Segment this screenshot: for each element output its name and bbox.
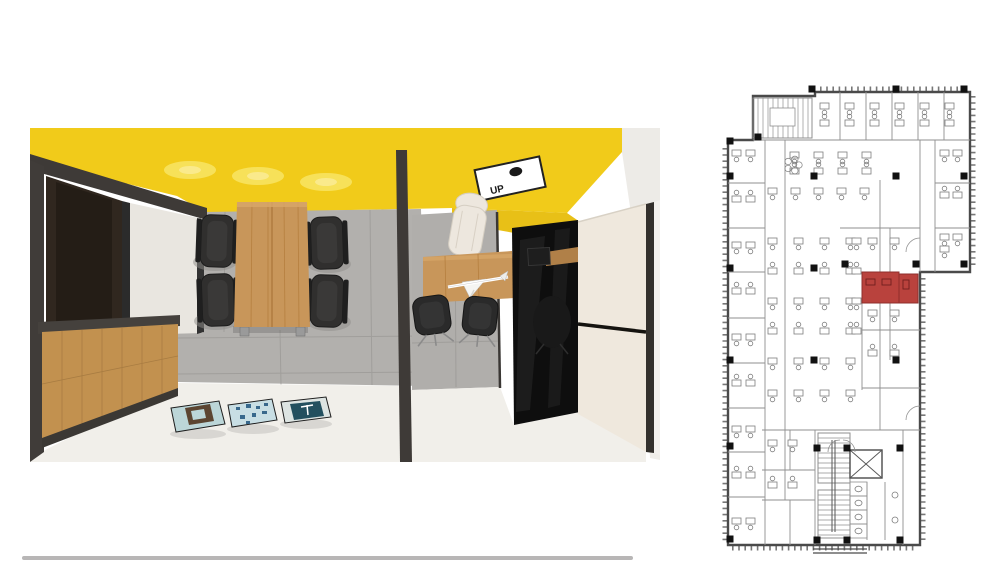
plan-desk — [862, 152, 871, 158]
room-render-3d: UP — [30, 128, 660, 462]
plan-desk — [794, 328, 803, 334]
plan-desk — [890, 238, 899, 244]
plan-desk — [940, 234, 949, 240]
plan-desk — [768, 390, 777, 396]
plan-column — [727, 138, 734, 145]
plan-desk — [940, 150, 949, 156]
media-cabinet — [512, 220, 580, 425]
wall-edge-post — [30, 160, 44, 462]
plan-desk — [852, 238, 861, 244]
plan-desk — [820, 238, 829, 244]
plan-column — [897, 537, 904, 544]
plan-desk — [920, 103, 929, 109]
plan-desk — [860, 188, 869, 194]
plan-desk — [920, 120, 929, 126]
plan-desk — [837, 188, 846, 194]
plan-desk — [794, 268, 803, 274]
plan-desk — [788, 440, 797, 446]
plan-desk — [814, 152, 823, 158]
dark-chair-silhouette — [533, 296, 571, 348]
plan-desk — [846, 390, 855, 396]
plan-desk — [732, 242, 741, 248]
plan-column — [811, 173, 818, 180]
plan-outline — [728, 92, 970, 545]
plan-desk — [890, 350, 899, 356]
plan-desk — [794, 238, 803, 244]
wardrobe — [578, 200, 660, 455]
plan-desk — [868, 310, 877, 316]
plan-desk — [746, 334, 755, 340]
plan-column — [727, 536, 734, 543]
plan-desk — [940, 192, 949, 198]
plan-column — [814, 537, 821, 544]
plan-desk — [746, 518, 755, 524]
plan-desk — [820, 103, 829, 109]
plan-desk — [852, 328, 861, 334]
mullion — [122, 201, 130, 336]
plan-desk — [852, 298, 861, 304]
plan-desk — [953, 150, 962, 156]
image-canvas: UP — [0, 0, 1000, 562]
meeting-chair — [305, 216, 349, 269]
plan-desk — [890, 310, 899, 316]
plan-desk — [895, 103, 904, 109]
plan-desk — [746, 472, 755, 478]
meeting-chair — [195, 214, 239, 267]
meeting-table — [233, 202, 310, 336]
plan-highlight-room — [862, 272, 899, 303]
plan-column — [814, 445, 821, 452]
plan-desk — [870, 120, 879, 126]
plan-column — [961, 86, 968, 93]
plan-desk — [845, 103, 854, 109]
plan-column — [893, 173, 900, 180]
plan-desk — [746, 150, 755, 156]
plan-desk — [768, 298, 777, 304]
plan-column — [844, 445, 851, 452]
plan-desk — [768, 440, 777, 446]
plan-desk — [820, 120, 829, 126]
plan-column — [727, 443, 734, 450]
monitor — [528, 247, 551, 265]
plan-stair-landing — [770, 108, 795, 126]
plan-desk — [732, 150, 741, 156]
plan-desk — [788, 482, 797, 488]
glass-panel — [130, 203, 203, 335]
plan-desk — [895, 120, 904, 126]
plan-column — [913, 261, 920, 268]
plan-column — [961, 261, 968, 268]
plan-desk — [746, 426, 755, 432]
plan-desk — [768, 268, 777, 274]
plan-desk — [794, 298, 803, 304]
plan-column — [844, 537, 851, 544]
plan-desk — [820, 268, 829, 274]
plan-column — [727, 265, 734, 272]
plan-desk — [940, 246, 949, 252]
plan-desk — [820, 358, 829, 364]
plan-column — [727, 173, 734, 180]
composite-image: UP — [0, 0, 1000, 562]
plan-desk — [768, 188, 777, 194]
plan-desk — [845, 120, 854, 126]
plan-desk — [820, 328, 829, 334]
plan-column — [811, 265, 818, 272]
plan-column — [809, 86, 816, 93]
plan-column — [755, 134, 762, 141]
plan-column — [842, 261, 849, 268]
plan-column — [893, 357, 900, 364]
plan-desk — [820, 390, 829, 396]
plan-desk — [814, 188, 823, 194]
plan-desk — [732, 380, 741, 386]
plan-column — [727, 357, 734, 364]
plan-desk — [820, 298, 829, 304]
plan-desk — [846, 358, 855, 364]
horizontal-scrollbar[interactable] — [22, 556, 633, 560]
wardrobe-frame — [646, 202, 654, 453]
plan-highlight-room — [899, 274, 918, 303]
plan-desk — [746, 242, 755, 248]
plan-desk — [868, 350, 877, 356]
plan-desk — [870, 103, 879, 109]
plan-desk — [746, 196, 755, 202]
meeting-chair — [196, 273, 240, 326]
plan-desk — [838, 152, 847, 158]
plan-desk — [945, 103, 954, 109]
plan-desk — [953, 192, 962, 198]
plan-desk — [732, 288, 741, 294]
plan-desk — [868, 238, 877, 244]
plan-column — [893, 86, 900, 93]
plan-column — [811, 357, 818, 364]
plan-desk — [862, 168, 871, 174]
plan-desk — [732, 518, 741, 524]
plan-desk — [768, 238, 777, 244]
meeting-chair — [305, 274, 349, 327]
plan-desk — [732, 472, 741, 478]
plan-desk — [732, 196, 741, 202]
plan-desk — [768, 482, 777, 488]
plan-desk — [746, 288, 755, 294]
plan-desk — [794, 358, 803, 364]
plan-desk — [732, 334, 741, 340]
plan-desk — [838, 168, 847, 174]
office-floor-plan — [725, 86, 973, 554]
plan-desk — [953, 234, 962, 240]
plan-desk — [768, 328, 777, 334]
plan-desk — [852, 268, 861, 274]
plan-column — [961, 173, 968, 180]
plan-desk — [791, 188, 800, 194]
plan-desk — [746, 380, 755, 386]
plan-desk — [732, 426, 741, 432]
plan-desk — [794, 390, 803, 396]
plan-desk — [768, 358, 777, 364]
plan-desk — [945, 120, 954, 126]
plan-column — [897, 445, 904, 452]
